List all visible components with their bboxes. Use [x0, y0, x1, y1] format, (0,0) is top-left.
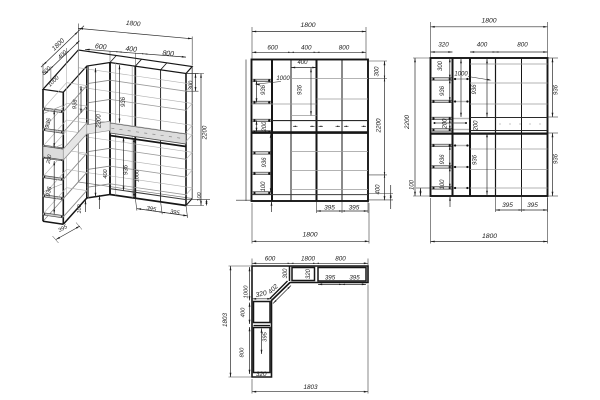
- svg-text:400: 400: [125, 46, 137, 54]
- svg-text:936: 936: [72, 99, 79, 110]
- svg-text:1000: 1000: [244, 285, 250, 299]
- svg-text:600: 600: [94, 43, 106, 51]
- svg-text:1000: 1000: [135, 169, 141, 182]
- svg-text:395: 395: [502, 202, 513, 209]
- svg-text:600: 600: [265, 255, 276, 262]
- svg-text:2200: 2200: [376, 118, 383, 134]
- svg-text:2200: 2200: [404, 115, 411, 131]
- svg-text:1800: 1800: [300, 22, 315, 29]
- svg-text:936: 936: [440, 154, 446, 165]
- svg-text:936: 936: [440, 85, 446, 96]
- svg-text:936: 936: [262, 157, 268, 168]
- svg-text:400: 400: [241, 307, 247, 317]
- svg-text:320: 320: [438, 42, 449, 49]
- svg-text:936: 936: [124, 164, 130, 175]
- svg-text:300: 300: [438, 60, 444, 71]
- svg-text:300: 300: [375, 66, 381, 77]
- svg-text:800: 800: [240, 347, 246, 357]
- svg-text:100: 100: [77, 205, 83, 214]
- svg-text:400: 400: [477, 42, 488, 49]
- svg-text:936: 936: [298, 84, 304, 95]
- svg-text:395: 395: [324, 205, 335, 212]
- svg-text:936: 936: [121, 96, 127, 107]
- svg-text:100: 100: [197, 191, 203, 201]
- svg-text:1803: 1803: [303, 384, 318, 391]
- svg-text:100: 100: [410, 179, 416, 190]
- svg-text:1800: 1800: [126, 20, 141, 28]
- svg-text:100: 100: [261, 181, 267, 192]
- svg-text:936: 936: [554, 84, 560, 95]
- svg-text:400: 400: [103, 168, 109, 178]
- svg-text:1800: 1800: [482, 233, 497, 240]
- svg-text:600: 600: [267, 44, 278, 51]
- svg-text:320: 320: [306, 268, 312, 279]
- svg-text:936: 936: [473, 154, 479, 165]
- svg-text:936: 936: [472, 84, 478, 95]
- svg-text:800: 800: [335, 255, 346, 262]
- svg-text:936: 936: [554, 153, 560, 164]
- svg-text:395: 395: [263, 331, 269, 341]
- svg-text:300: 300: [283, 268, 289, 279]
- svg-text:1800: 1800: [301, 255, 316, 262]
- svg-text:200: 200: [443, 118, 449, 130]
- svg-text:395: 395: [349, 205, 360, 212]
- svg-text:200: 200: [262, 121, 268, 133]
- svg-text:936: 936: [261, 84, 267, 95]
- svg-text:800: 800: [162, 50, 174, 58]
- svg-text:395: 395: [325, 275, 336, 282]
- svg-text:100: 100: [440, 179, 446, 190]
- svg-text:800: 800: [517, 42, 528, 49]
- svg-text:300: 300: [189, 80, 195, 90]
- svg-text:395: 395: [527, 202, 538, 209]
- svg-text:1803: 1803: [222, 313, 229, 328]
- svg-text:1800: 1800: [302, 232, 317, 239]
- svg-text:2200: 2200: [96, 114, 103, 129]
- svg-text:400: 400: [301, 44, 312, 51]
- svg-text:400: 400: [297, 60, 308, 66]
- svg-text:1000: 1000: [276, 76, 290, 82]
- svg-text:320: 320: [256, 371, 267, 378]
- svg-text:200: 200: [474, 120, 480, 132]
- svg-text:395: 395: [349, 275, 360, 282]
- svg-text:2200: 2200: [202, 125, 209, 140]
- svg-text:400: 400: [376, 184, 382, 195]
- svg-text:1800: 1800: [481, 17, 496, 24]
- svg-text:800: 800: [339, 44, 350, 51]
